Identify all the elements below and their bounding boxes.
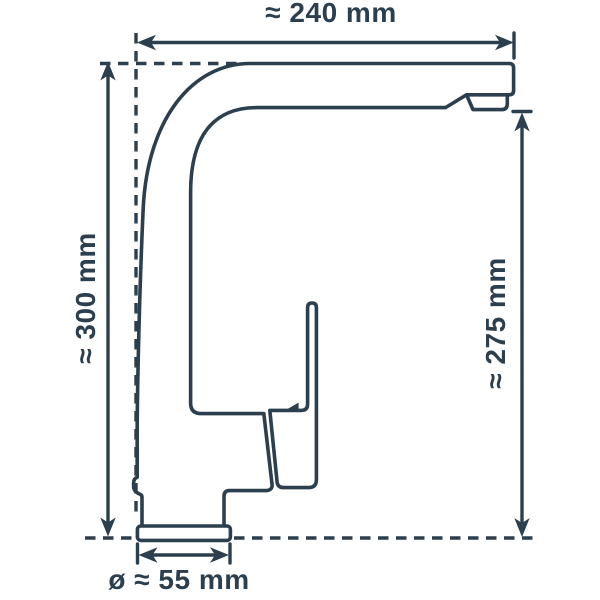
faucet-body-outline <box>134 64 514 526</box>
dim-label-275mm: ≈ 275 mm <box>481 257 511 388</box>
base-plate-outline <box>137 526 230 540</box>
dim-label-240mm: ≈ 240 mm <box>265 0 396 28</box>
faucet-dimension-drawing: ≈ 240 mm ≈ 300 mm ≈ 275 mm ø ≈ 55 mm <box>0 0 600 600</box>
faucet-outline <box>134 64 514 541</box>
dim-label-300mm: ≈ 300 mm <box>71 232 101 363</box>
dim-label-55mm: ø ≈ 55 mm <box>108 565 249 595</box>
lever-handle-outline <box>270 303 317 488</box>
aerator-outline <box>468 97 508 110</box>
lever-pivot-notch <box>288 403 299 409</box>
